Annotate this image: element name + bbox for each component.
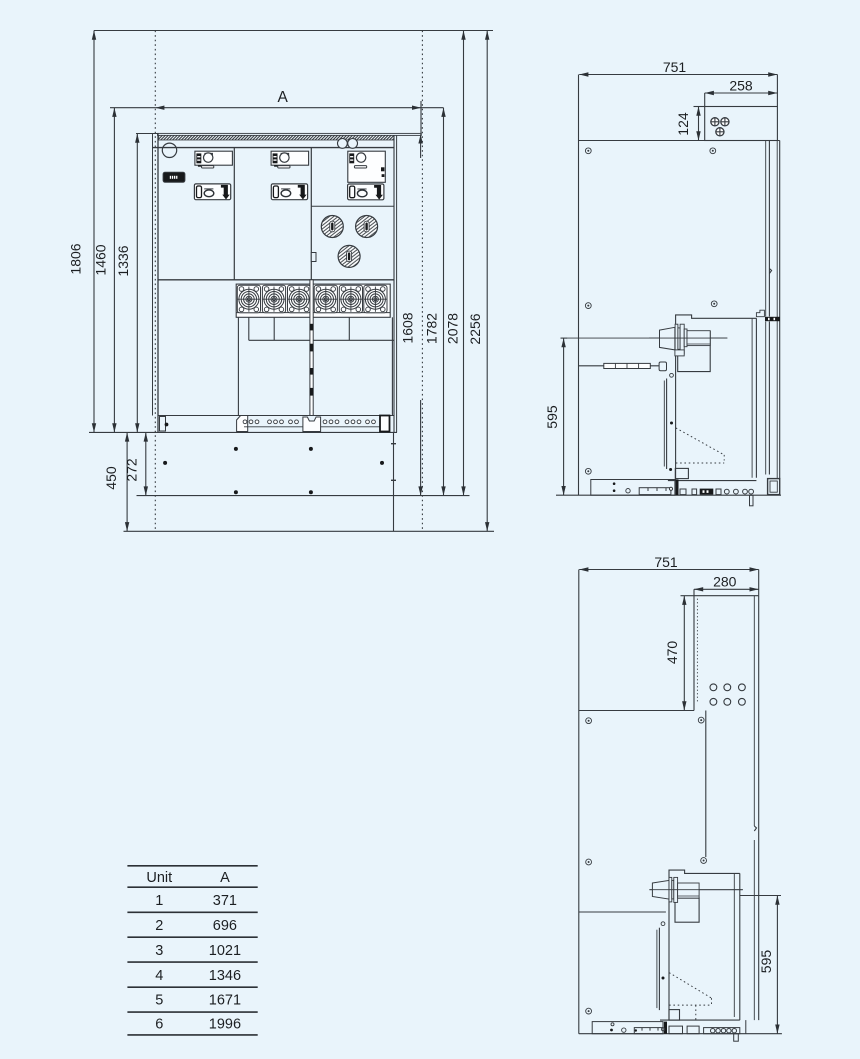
svg-text:1671: 1671 bbox=[209, 993, 241, 1009]
svg-text:1806: 1806 bbox=[68, 243, 84, 274]
svg-text:5: 5 bbox=[155, 993, 163, 1009]
svg-text:1460: 1460 bbox=[93, 244, 109, 275]
svg-text:595: 595 bbox=[544, 405, 560, 429]
svg-text:1346: 1346 bbox=[209, 968, 241, 984]
svg-text:1996: 1996 bbox=[209, 1016, 241, 1032]
svg-text:4: 4 bbox=[155, 968, 163, 984]
svg-text:450: 450 bbox=[103, 466, 119, 490]
svg-text:280: 280 bbox=[713, 574, 737, 590]
svg-text:2: 2 bbox=[155, 918, 163, 934]
svg-text:258: 258 bbox=[729, 78, 753, 94]
svg-text:1608: 1608 bbox=[400, 312, 416, 343]
svg-text:696: 696 bbox=[213, 918, 237, 934]
svg-text:2078: 2078 bbox=[445, 313, 461, 344]
svg-text:595: 595 bbox=[758, 950, 774, 974]
svg-text:3: 3 bbox=[155, 943, 163, 959]
svg-text:Unit: Unit bbox=[146, 870, 172, 886]
svg-text:1021: 1021 bbox=[209, 943, 241, 959]
svg-text:1782: 1782 bbox=[424, 313, 440, 344]
svg-text:A: A bbox=[220, 870, 230, 886]
svg-text:371: 371 bbox=[213, 893, 237, 909]
svg-text:1336: 1336 bbox=[115, 245, 131, 276]
svg-text:A: A bbox=[278, 89, 289, 106]
svg-text:751: 751 bbox=[663, 59, 687, 75]
svg-text:751: 751 bbox=[654, 554, 678, 570]
svg-text:2256: 2256 bbox=[467, 313, 483, 344]
svg-text:470: 470 bbox=[664, 641, 680, 665]
svg-text:124: 124 bbox=[675, 112, 691, 136]
svg-text:1: 1 bbox=[155, 893, 163, 909]
svg-text:272: 272 bbox=[123, 458, 139, 482]
svg-text:6: 6 bbox=[155, 1016, 163, 1032]
